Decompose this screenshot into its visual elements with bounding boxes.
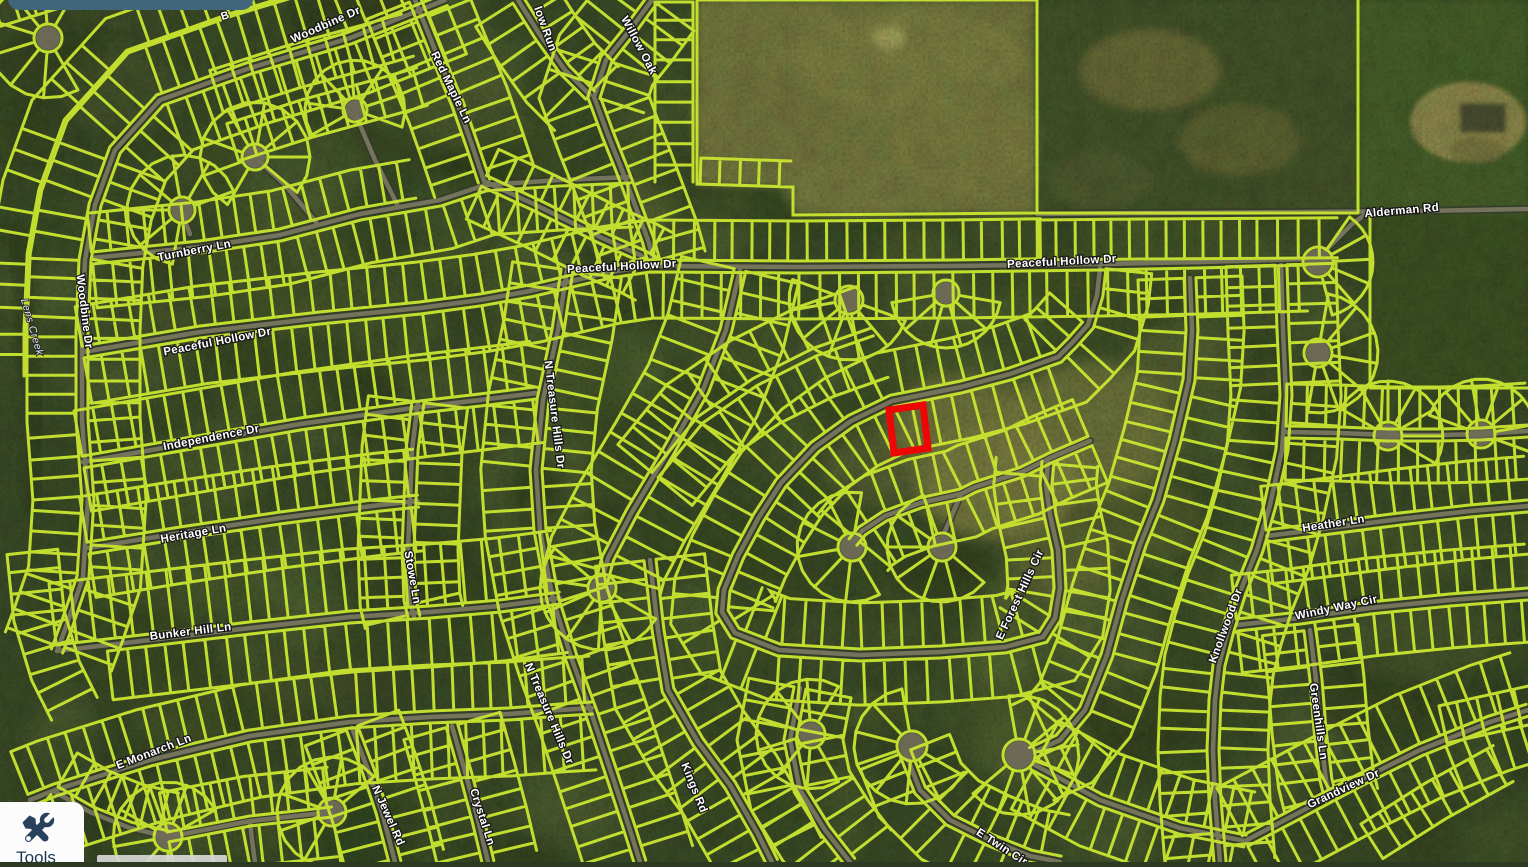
svg-text:Tools: Tools — [16, 848, 56, 862]
